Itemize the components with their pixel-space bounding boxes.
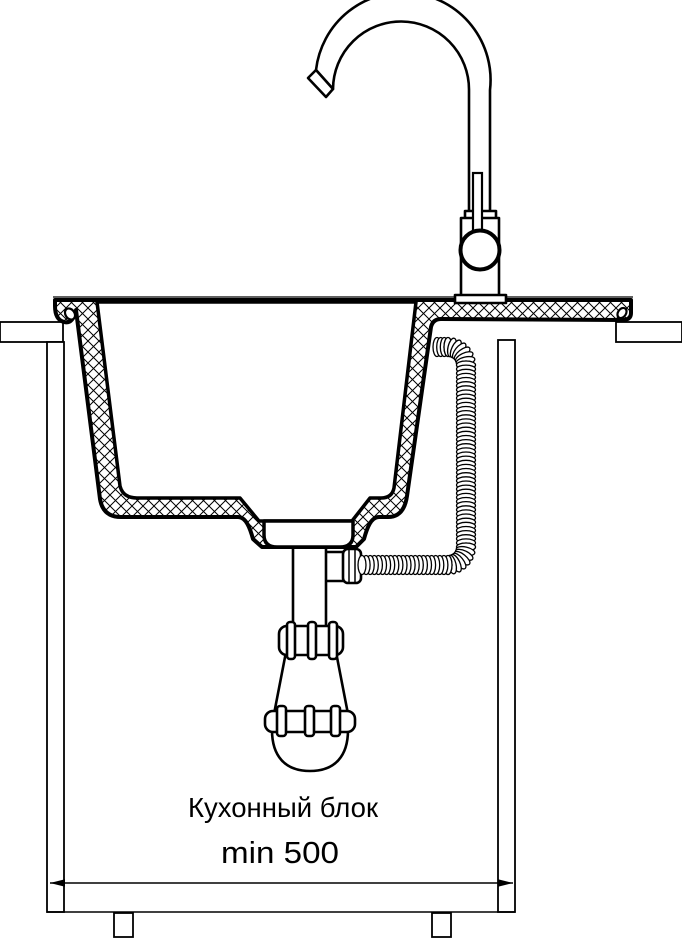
countertop-sink-cross-section — [53, 297, 633, 547]
drain-siphon — [264, 521, 361, 771]
dimension-annotation: Кухонный блок min 500 — [50, 792, 513, 887]
drain-flange — [264, 521, 353, 547]
sink-bowl-interior — [97, 302, 416, 521]
faucet-spout-tube — [316, 0, 491, 213]
min-width-label: min 500 — [221, 835, 339, 870]
faucet-base — [455, 295, 506, 303]
technical-drawing: Кухонный блок min 500 — [0, 0, 682, 940]
faucet-lever-rod — [473, 173, 482, 231]
slip-nut-upper — [279, 622, 343, 659]
cabinet-leg-left — [114, 913, 133, 937]
faucet-ball-joint — [461, 231, 500, 270]
cabinet-leg-right — [432, 913, 451, 937]
wall-ledge-left — [0, 322, 63, 342]
faucet — [308, 0, 506, 303]
slip-nut-lower — [265, 706, 355, 736]
wall-ledge-right — [616, 322, 682, 342]
cabinet-side-left — [47, 342, 64, 912]
hose-ring — [358, 556, 366, 575]
cabinet-label: Кухонный блок — [188, 792, 379, 823]
cabinet-side-right — [498, 340, 515, 912]
sink-installation-drawing: Кухонный блок min 500 — [0, 0, 682, 940]
